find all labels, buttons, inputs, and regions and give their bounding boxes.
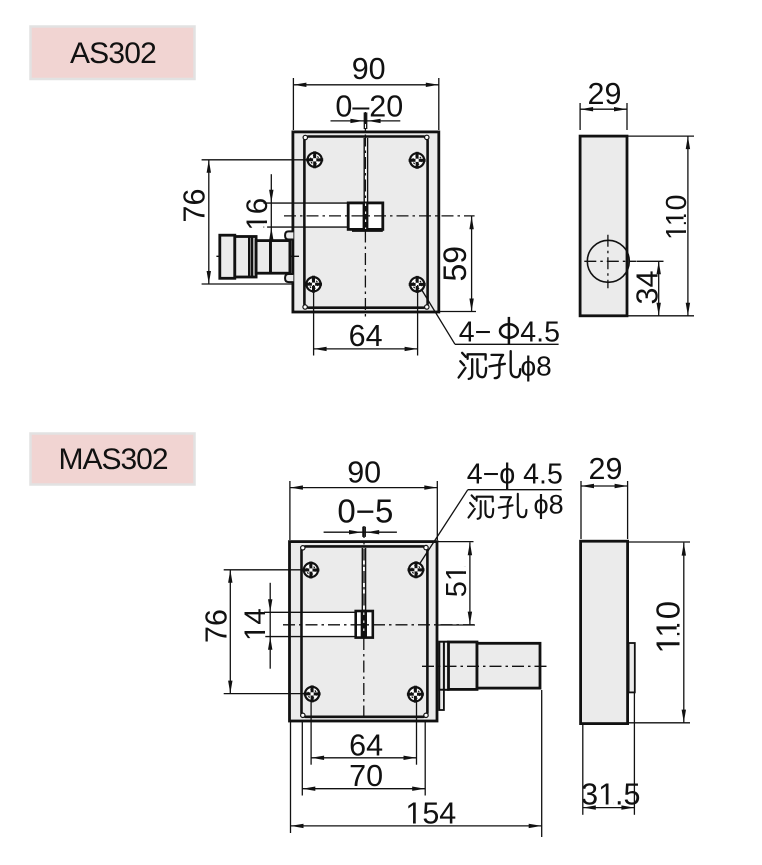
- svg-text:76: 76: [178, 189, 212, 223]
- svg-text:51: 51: [441, 565, 473, 597]
- svg-text:70: 70: [349, 759, 383, 793]
- svg-text:0–20: 0–20: [335, 90, 403, 124]
- svg-text:29: 29: [588, 77, 622, 111]
- svg-text:MAS302: MAS302: [58, 443, 167, 476]
- svg-text:4−: 4−: [459, 317, 492, 349]
- svg-text:31.5: 31.5: [581, 777, 640, 811]
- svg-text:59: 59: [437, 246, 473, 282]
- svg-text:154: 154: [405, 797, 456, 831]
- svg-text:64: 64: [349, 729, 383, 763]
- svg-text:0−5: 0−5: [337, 493, 393, 530]
- svg-text:90: 90: [352, 52, 386, 86]
- svg-text:ϕ8: ϕ8: [534, 490, 564, 520]
- svg-text:AS302: AS302: [70, 37, 156, 70]
- svg-text:90: 90: [347, 456, 381, 490]
- svg-text:76: 76: [200, 609, 234, 643]
- svg-text:16: 16: [241, 198, 274, 231]
- svg-text:ϕ8: ϕ8: [521, 351, 552, 382]
- svg-text:4−ϕ 4.5: 4−ϕ 4.5: [467, 459, 563, 491]
- svg-text:29: 29: [589, 452, 623, 486]
- svg-text:64: 64: [349, 319, 383, 353]
- svg-text:4.5: 4.5: [520, 317, 560, 349]
- svg-text:14: 14: [239, 608, 272, 641]
- svg-text:34: 34: [630, 271, 664, 305]
- svg-text:110: 110: [661, 195, 693, 240]
- svg-text:110: 110: [650, 601, 687, 654]
